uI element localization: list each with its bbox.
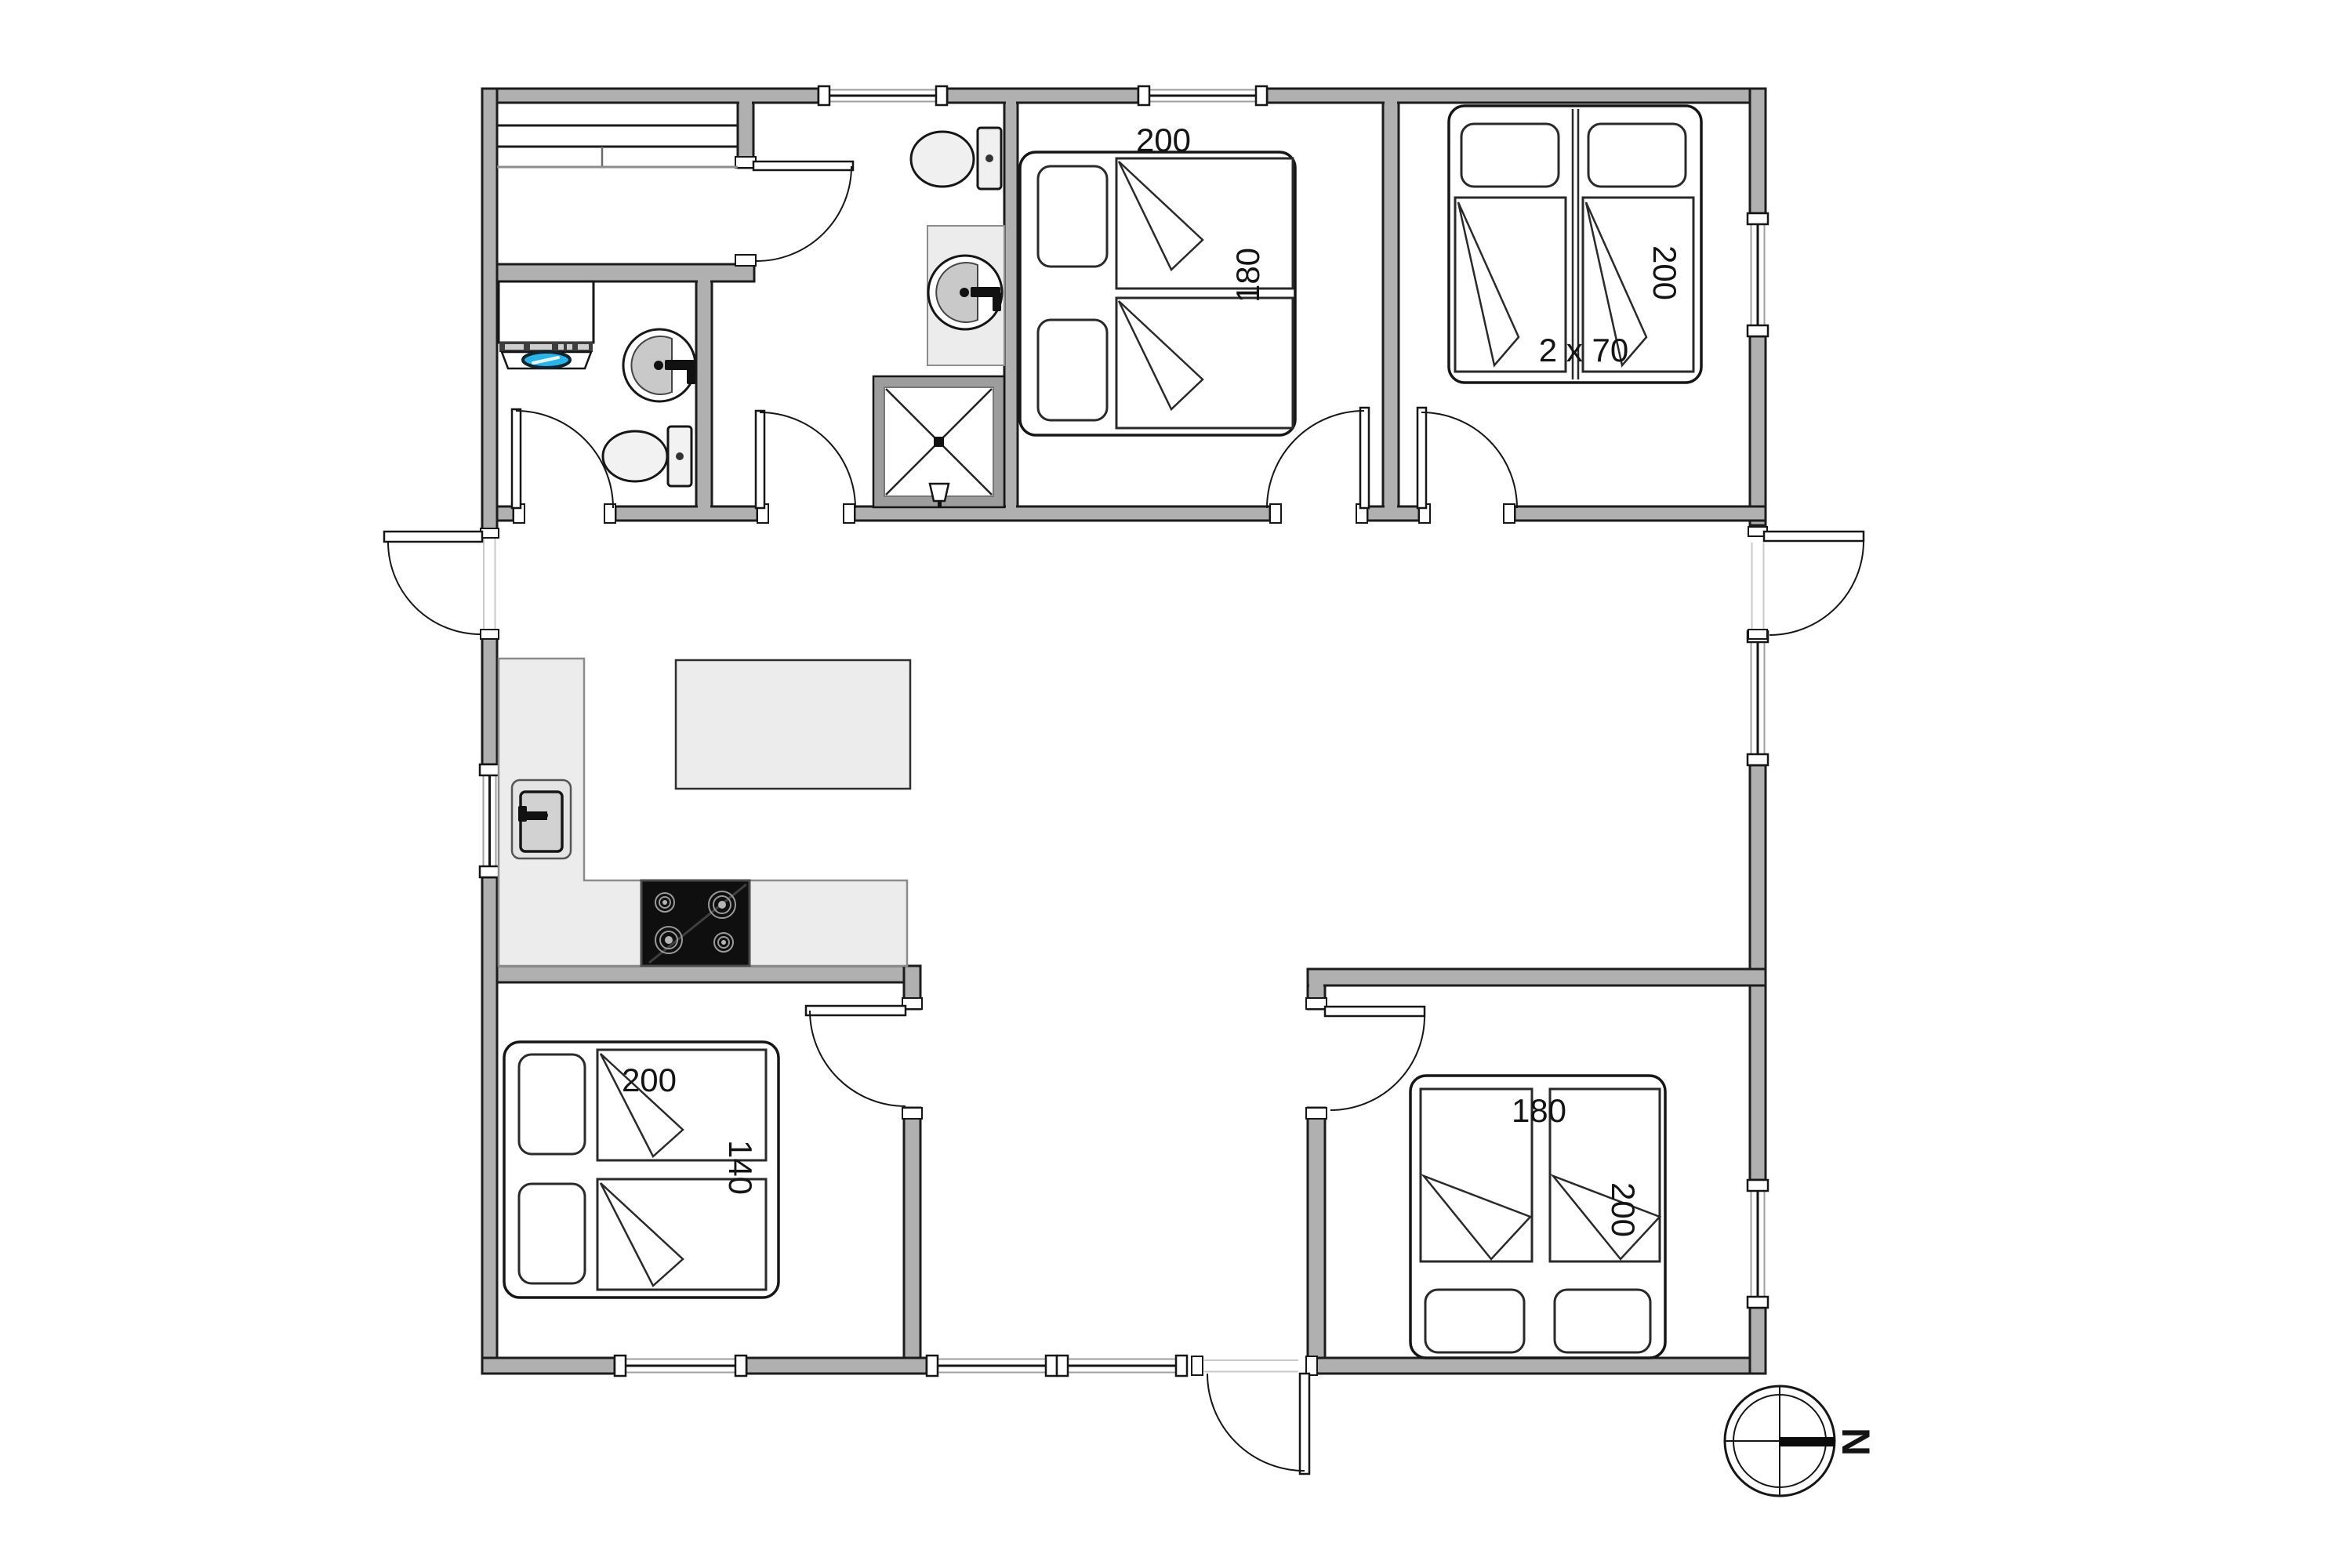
svg-text:2 x 70: 2 x 70: [1539, 332, 1628, 368]
svg-text:200: 200: [622, 1062, 677, 1098]
svg-text:200: 200: [1646, 245, 1683, 300]
svg-text:180: 180: [1229, 248, 1266, 303]
svg-text:200: 200: [1136, 122, 1191, 158]
svg-text:N: N: [1834, 1428, 1878, 1456]
svg-text:180: 180: [1512, 1092, 1566, 1129]
svg-text:200: 200: [1605, 1182, 1642, 1237]
svg-text:140: 140: [722, 1140, 759, 1195]
